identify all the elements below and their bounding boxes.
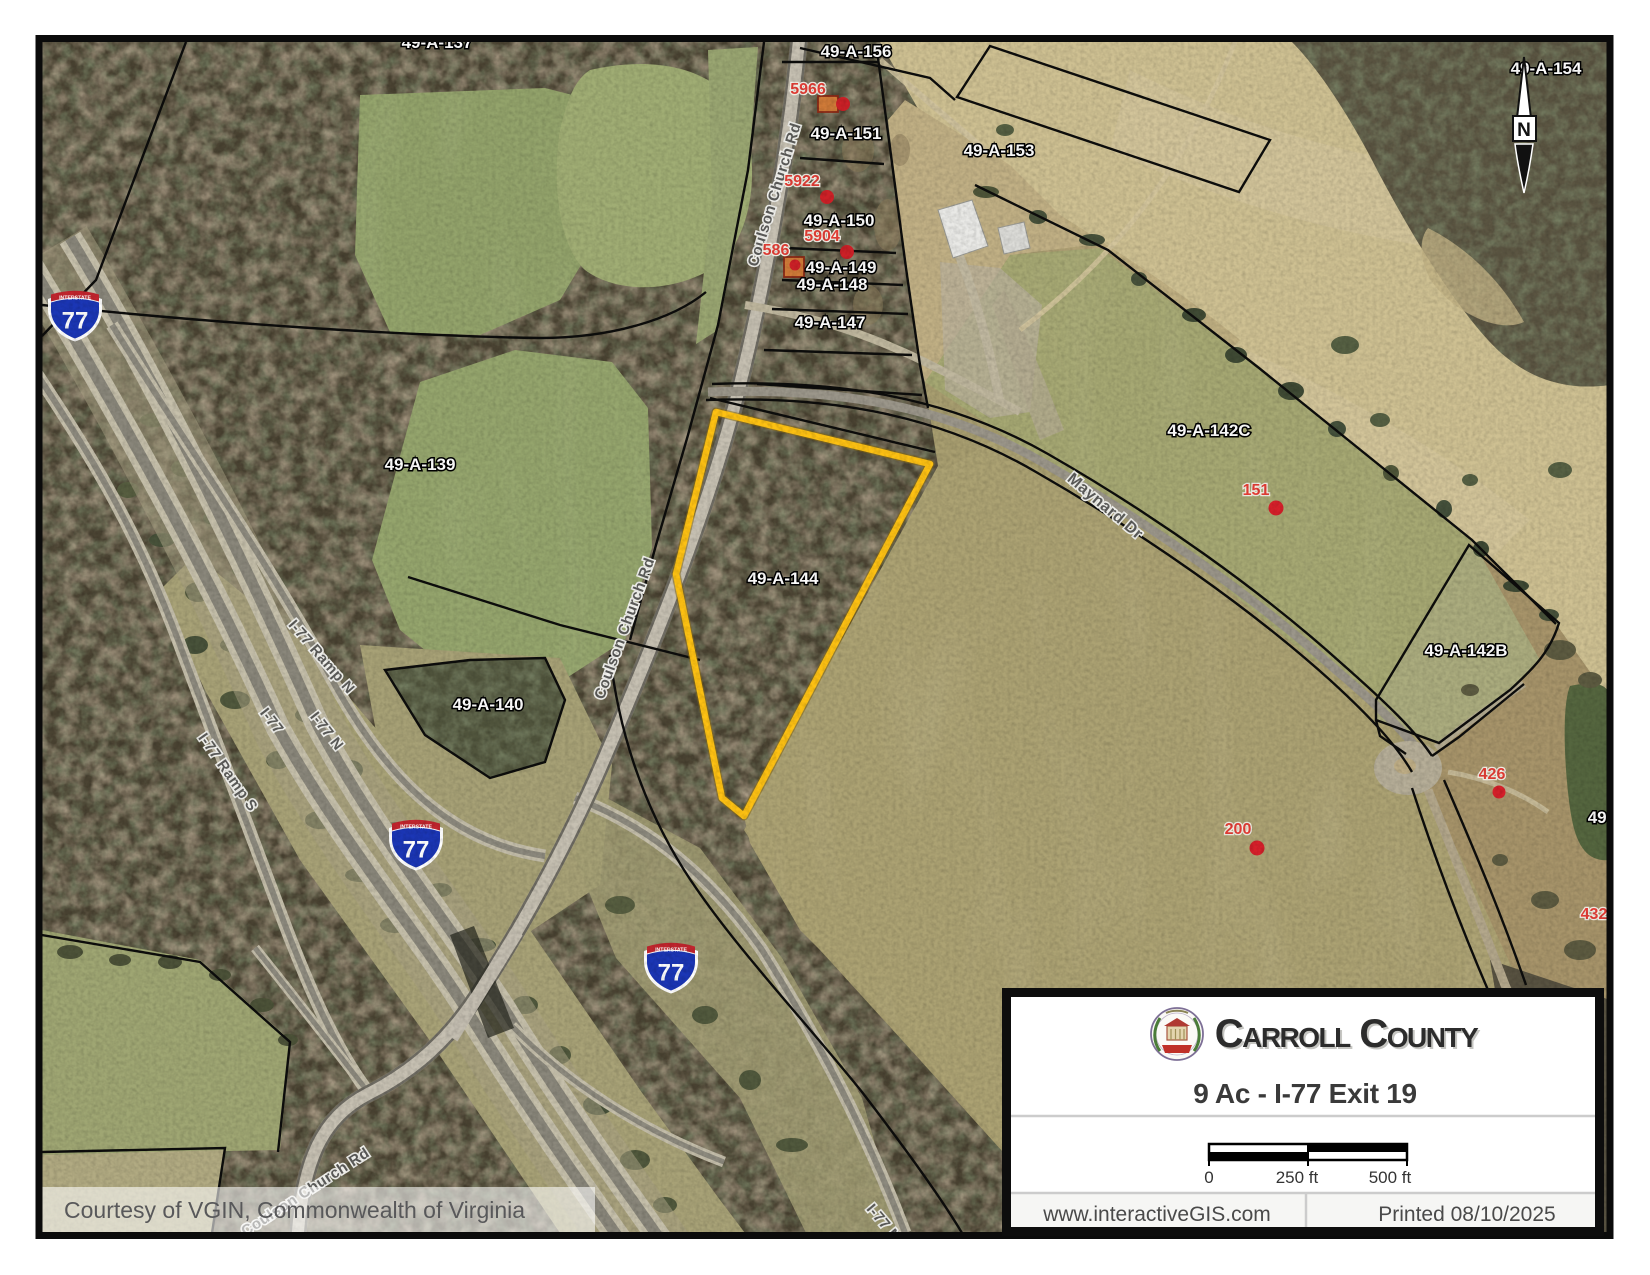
- svg-text:N: N: [1517, 120, 1531, 141]
- svg-text:500 ft: 500 ft: [1369, 1168, 1412, 1187]
- svg-text:Carroll County: Carroll County: [1215, 1012, 1479, 1056]
- svg-text:Courtesy of VGIN, Commonwealth: Courtesy of VGIN, Commonwealth of Virgin…: [64, 1197, 525, 1223]
- svg-text:250 ft: 250 ft: [1276, 1168, 1319, 1187]
- svg-text:9 Ac - I-77 Exit 19: 9 Ac - I-77 Exit 19: [1193, 1078, 1417, 1109]
- svg-text:Printed 08/10/2025: Printed 08/10/2025: [1378, 1203, 1555, 1226]
- svg-text:0: 0: [1204, 1168, 1213, 1187]
- svg-text:www.interactiveGIS.com: www.interactiveGIS.com: [1042, 1203, 1271, 1226]
